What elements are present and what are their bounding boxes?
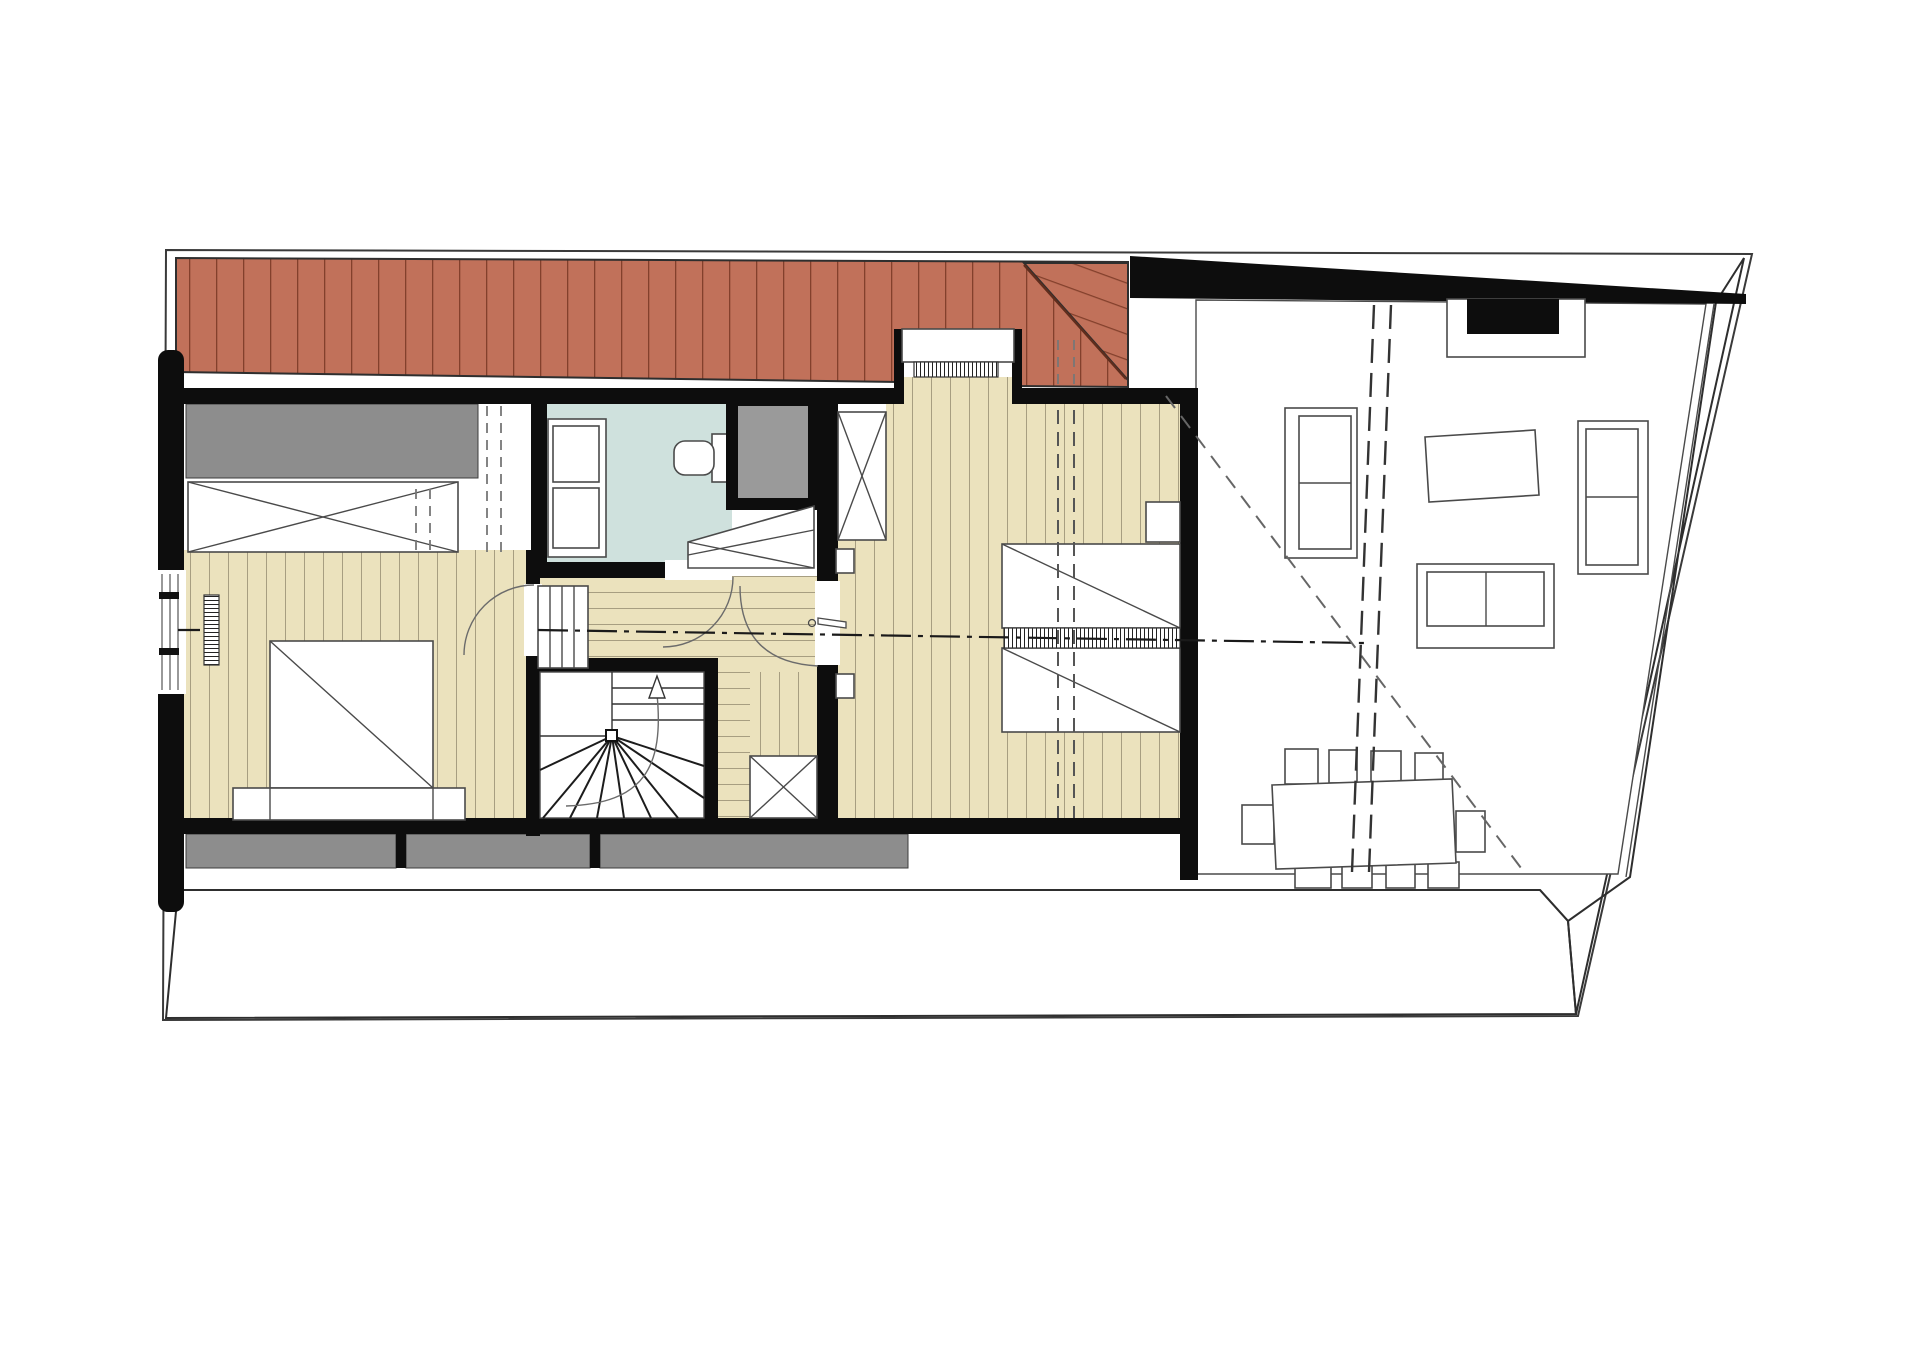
winder-staircase — [540, 672, 704, 818]
dining-chair — [1456, 811, 1485, 852]
coffee-table — [1425, 430, 1539, 502]
slope-zone-south-3 — [600, 834, 908, 868]
wall-bath-south — [531, 562, 665, 578]
dining-chair — [1428, 862, 1459, 888]
dormer-window-band — [902, 329, 1014, 362]
slope-zone-north — [186, 404, 478, 478]
foot-bench — [233, 788, 465, 820]
stair-newel — [606, 730, 617, 741]
dining-chair — [1371, 751, 1401, 784]
floor-plan-canvas — [0, 0, 1920, 1357]
dining-chair — [1242, 805, 1274, 844]
dining-chair — [1285, 749, 1318, 784]
dining-chair — [1329, 750, 1357, 783]
floor-plan-drawing — [0, 0, 1920, 1357]
nightstand — [1146, 502, 1180, 542]
wall-niche-lower — [836, 674, 854, 698]
mullion-block — [159, 592, 179, 599]
chimney-flue — [1467, 299, 1559, 334]
wall-divider-1 — [396, 834, 406, 868]
wall-bath-west — [531, 396, 547, 576]
dormer-vent-grille — [914, 362, 998, 377]
dining-chair — [1342, 864, 1372, 888]
vanity-basin-2 — [553, 488, 599, 548]
wall-divider-2 — [590, 834, 600, 868]
toilet-bowl — [674, 441, 714, 475]
dining-table — [1272, 779, 1456, 869]
wall-stair-east — [704, 658, 718, 834]
hall-shelf-cabinet — [538, 586, 588, 668]
hallway-floor-south-strip — [718, 672, 750, 818]
slope-zone-south-1 — [186, 834, 396, 868]
mullion-block — [159, 648, 179, 655]
dining-chair — [1386, 864, 1415, 888]
shower-tray — [738, 406, 808, 498]
wall-middle-living — [1180, 388, 1198, 880]
stair-well — [540, 672, 704, 818]
wall-niche-upper — [836, 549, 854, 573]
slope-zone-south-2 — [406, 834, 590, 868]
dormer-bay — [902, 329, 1014, 377]
radiator — [204, 595, 219, 665]
vanity-basin-1 — [553, 426, 599, 482]
